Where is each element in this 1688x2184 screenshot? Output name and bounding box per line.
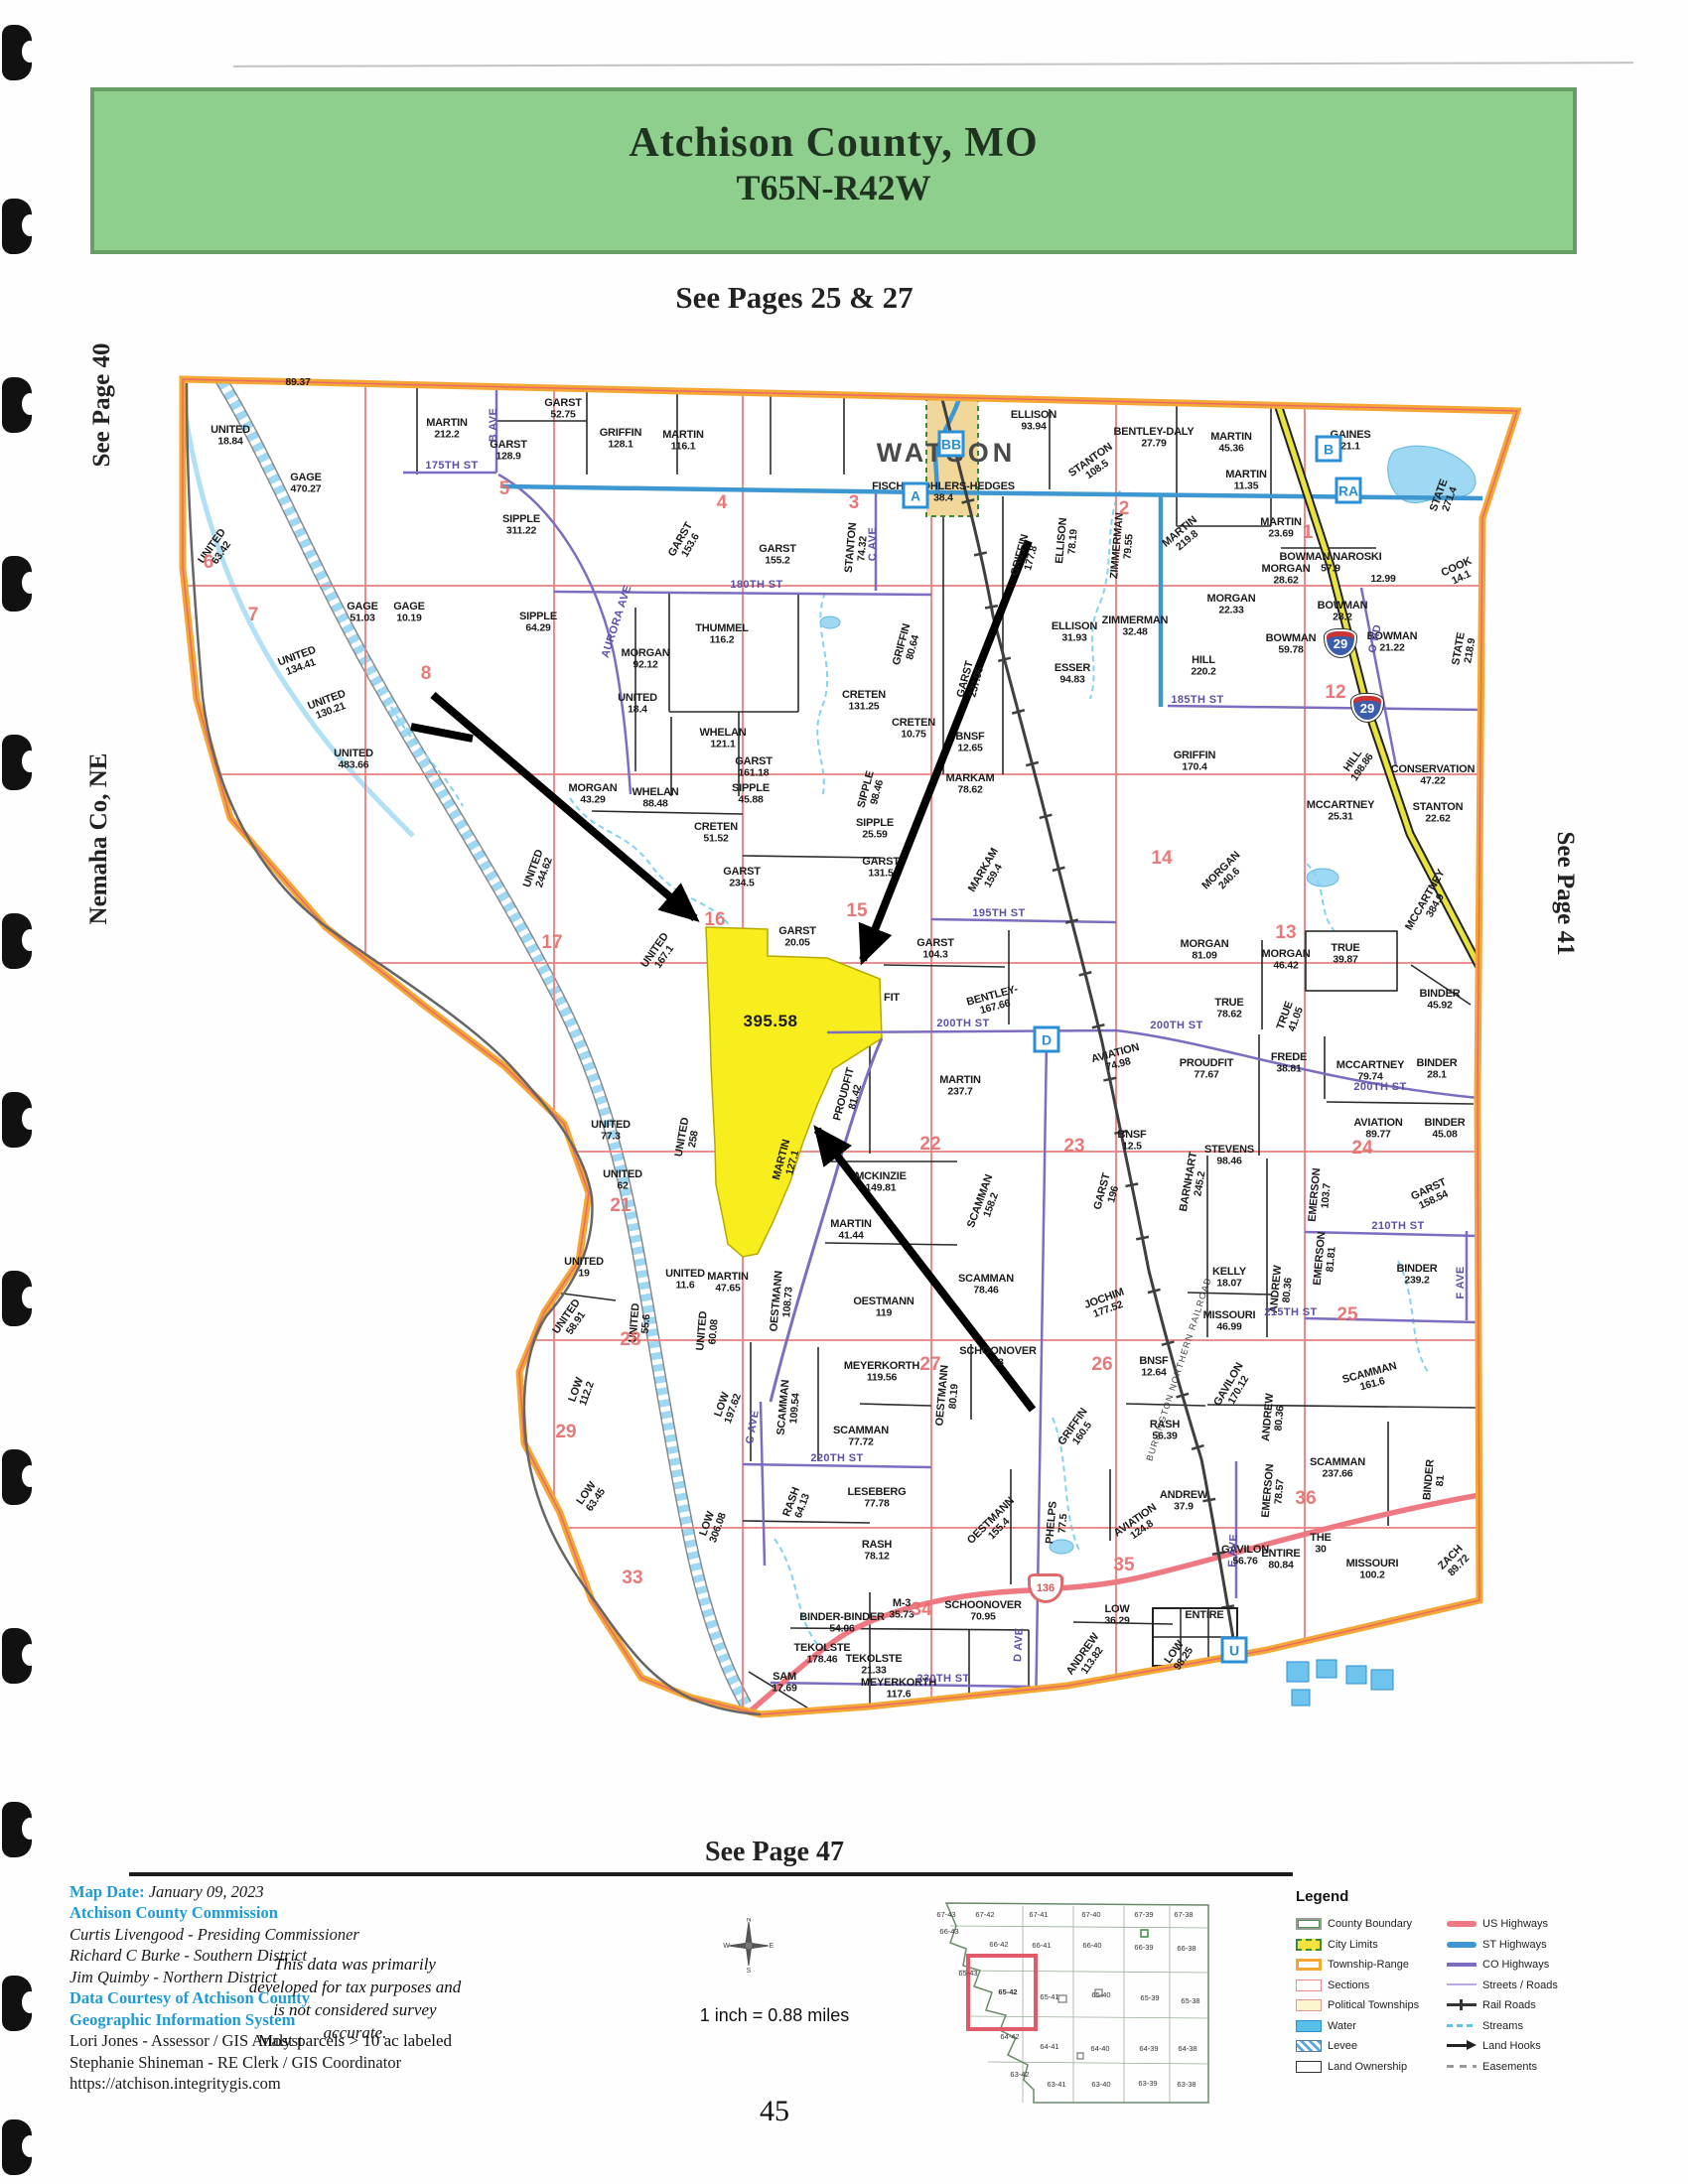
svg-text:S: S (747, 1968, 752, 1974)
inset-township-65-41: 65-41 (1040, 1992, 1058, 2001)
section-number: 12 (1325, 682, 1345, 703)
legend-label: Rail Roads (1482, 1999, 1536, 2011)
inset-township-64-39: 64-39 (1139, 2044, 1158, 2053)
county-outline (946, 1903, 1208, 2103)
section-number: 36 (1295, 1488, 1316, 1509)
commission-line: Atchison County Commission (70, 1903, 487, 1922)
parcel-label: GAGE10.19 (393, 601, 425, 624)
section-number: 7 (248, 605, 259, 625)
section-number: 34 (911, 1599, 932, 1620)
road-label: B AVE (488, 408, 499, 442)
section-number: 2 (1119, 498, 1130, 519)
binding-coil (2, 25, 32, 80)
nemaha-co-label: Nemaha Co, NE (85, 753, 113, 925)
inset-township-65-40: 65-40 (1091, 1990, 1110, 1999)
see-page-41: See Page 41 (1551, 832, 1579, 956)
staff-line: https://atchison.integritygis.com (70, 2074, 487, 2093)
section-number: 1 (1303, 522, 1314, 543)
inset-township-67-43: 67-43 (936, 1910, 955, 1919)
legend-item: County Boundary (1296, 1914, 1419, 1935)
road-label: 220TH ST (810, 1452, 863, 1464)
inset-township-63-39: 63-39 (1138, 2079, 1157, 2088)
binding-coil (2, 1092, 32, 1148)
county-inset-map: 67-4367-4267-4167-4067-3967-3866-4366-42… (928, 1886, 1226, 2115)
inset-township-66-39: 66-39 (1134, 1943, 1153, 1952)
binding-coil (2, 1628, 32, 1684)
inset-township-63-40: 63-40 (1091, 2080, 1110, 2089)
binding-coil (2, 377, 32, 433)
road-label: D AVE (1012, 1627, 1026, 1662)
state-route-shield: U (1221, 1637, 1248, 1664)
legend-label: Easements (1482, 2061, 1537, 2073)
legend-item: Land Ownership (1296, 2057, 1419, 2078)
page-number: 45 (715, 2095, 834, 2128)
road-label: 200TH ST (1150, 1020, 1202, 1031)
section-number: 16 (704, 909, 725, 930)
inset-township-65-38: 65-38 (1181, 1996, 1199, 2005)
road-label: 175TH ST (425, 460, 478, 472)
inset-township-67-39: 67-39 (1134, 1910, 1153, 1919)
svg-text:W: W (723, 1943, 730, 1950)
inset-township-64-40: 64-40 (1090, 2044, 1109, 2053)
section-number: 27 (919, 1354, 940, 1375)
legend-item: US Highways (1447, 1914, 1558, 1935)
section-number: 22 (919, 1134, 940, 1155)
legend-swatch-poltwp (1296, 1999, 1322, 2011)
inset-township-66-40: 66-40 (1082, 1941, 1101, 1950)
parcel-label: SIPPLE311.22 (502, 513, 540, 537)
legend-item: Township-Range (1296, 1955, 1419, 1976)
see-pages-top: See Pages 25 & 27 (397, 280, 1192, 316)
legend-swatch-county (1296, 1918, 1322, 1930)
road-label: E AVE (1226, 1534, 1240, 1568)
legend-item: City Limits (1296, 1935, 1419, 1956)
parcel-label: UNITED483.66 (334, 748, 373, 771)
inset-township-66-42: 66-42 (989, 1940, 1008, 1949)
road-label: F AVE (1455, 1266, 1467, 1298)
legend-swatch-twp (1296, 1959, 1322, 1971)
binding-coil (2, 2119, 32, 2175)
legend-item: Streams (1447, 2016, 1558, 2037)
section-number: 3 (849, 492, 860, 513)
section-number: 6 (204, 552, 214, 573)
binding-coil (2, 1976, 32, 2031)
parcel-label: RASH78.12 (862, 1539, 893, 1563)
state-route-shield: A (903, 482, 929, 509)
inset-township-66-38: 66-38 (1177, 1944, 1196, 1953)
inset-township-66-41: 66-41 (1032, 1941, 1051, 1950)
parcel-label: LOW36.29 (1104, 1603, 1130, 1627)
binding-coil (2, 1449, 32, 1505)
section-number: 5 (499, 478, 510, 499)
inset-township-67-38: 67-38 (1174, 1910, 1193, 1919)
legend-item: Rail Roads (1447, 1995, 1558, 2016)
see-page-47: See Page 47 (377, 1837, 1172, 1868)
parcel-label: HILL220.2 (1191, 654, 1216, 678)
legend-item: ST Highways (1447, 1935, 1558, 1956)
parcel-label: BNSF12.64 (1139, 1355, 1169, 1379)
parcel-label: ENTIRE (1185, 1609, 1223, 1621)
highlighted-parcel-acreage: 395.58 (744, 1012, 798, 1030)
parcel-label: GAGE470.27 (290, 472, 322, 495)
footer-rule (129, 1872, 1293, 1876)
legend-left-column: County BoundaryCity LimitsTownship-Range… (1296, 1914, 1419, 2077)
parcel-label: BNSF12.65 (955, 731, 985, 754)
state-route-shield: BB (938, 431, 965, 458)
inset-township-67-42: 67-42 (975, 1910, 994, 1919)
section-number: 28 (620, 1329, 640, 1350)
legend-item: Sections (1296, 1976, 1419, 1996)
inset-township-64-41: 64-41 (1040, 2042, 1058, 2051)
road-label: 195TH ST (972, 907, 1025, 919)
section-number: 29 (555, 1422, 576, 1442)
inset-township-65-39: 65-39 (1140, 1993, 1159, 2002)
legend-label: County Boundary (1328, 1918, 1412, 1930)
binding-coil (2, 556, 32, 612)
road-label: 230TH ST (916, 1673, 969, 1685)
binding-coil (2, 735, 32, 790)
plat-map-svg: 89.37UNITED18.84GAGE470.27MARTIN212.2GAR… (175, 369, 1521, 1722)
road-label: 215TH ST (1264, 1306, 1317, 1318)
legend-label: Sections (1328, 1979, 1369, 1991)
section-number: 21 (610, 1195, 632, 1216)
parcel-label: SAM17.69 (772, 1671, 797, 1695)
parcel-label: 89.37 (285, 376, 311, 388)
legend-label: Levee (1328, 2040, 1357, 2052)
road-label: 185TH ST (1171, 694, 1223, 706)
section-number: 24 (1351, 1138, 1373, 1159)
state-route-shield: B (1316, 436, 1342, 463)
scan-artifact-line (233, 62, 1633, 68)
county-title: Atchison County, MO (94, 119, 1573, 167)
inset-township-63-38: 63-38 (1177, 2080, 1196, 2089)
scale-note: 1 inch = 0.88 miles (655, 2005, 894, 2026)
inset-township-65-42: 65-42 (998, 1987, 1017, 1996)
legend-item: Easements (1447, 2057, 1558, 2078)
legend: Legend County BoundaryCity LimitsTownshi… (1296, 1888, 1584, 1911)
inset-township-66-43: 66-43 (939, 1927, 958, 1936)
binding-coil (2, 199, 32, 254)
compass-rose: NSWE (723, 1918, 774, 1974)
legend-swatch-sections (1296, 1979, 1322, 1991)
road-label: 200TH ST (936, 1018, 989, 1029)
legend-label: Political Townships (1328, 1999, 1419, 2011)
inset-township-67-40: 67-40 (1081, 1910, 1100, 1919)
section-number: 23 (1063, 1136, 1084, 1157)
legend-label: ST Highways (1482, 1939, 1547, 1951)
legend-label: Land Hooks (1482, 2040, 1541, 2052)
parcel-label: 12.99 (1370, 573, 1396, 585)
section-number: 17 (541, 932, 562, 953)
commissioner-line: Curtis Livengood - Presiding Commissione… (70, 1925, 487, 1944)
section-number: 8 (421, 663, 432, 684)
legend-title: Legend (1296, 1888, 1584, 1905)
legend-swatch-land (1296, 2061, 1322, 2073)
legend-label: US Highways (1482, 1918, 1548, 1930)
legend-item: Water (1296, 2016, 1419, 2037)
state-route-shield: RA (1336, 478, 1362, 504)
water-squares (1287, 1660, 1393, 1706)
legend-label: Land Ownership (1328, 2061, 1407, 2073)
inset-township-63-42: 63-42 (1010, 2070, 1029, 2079)
binding-coil (2, 1271, 32, 1326)
legend-item: Levee (1296, 2036, 1419, 2057)
road-label: 180TH ST (730, 579, 782, 591)
binding-coil (2, 1802, 32, 1857)
see-page-40: See Page 40 (88, 343, 116, 468)
map-date-label: Map Date: (70, 1882, 145, 1901)
legend-swatch-water (1296, 2020, 1322, 2032)
legend-label: Streams (1482, 2020, 1523, 2032)
section-number: 13 (1275, 922, 1296, 943)
section-number: 4 (717, 492, 728, 513)
road-label: C AVE (867, 527, 879, 561)
road-label: 210TH ST (1371, 1220, 1424, 1232)
legend-label: CO Highways (1482, 1959, 1549, 1971)
section-number: 26 (1091, 1354, 1112, 1375)
parcel-label: TRUE39.87 (1331, 942, 1359, 966)
inset-township-64-42: 64-42 (1000, 2032, 1019, 2041)
plat-book-page: { "page": { "title_line1": "Atchison Cou… (0, 0, 1688, 2184)
parcel-label: FIT (884, 992, 900, 1004)
section-number: 35 (1113, 1555, 1135, 1575)
inset-township-65-43: 65-43 (958, 1969, 977, 1978)
title-banner: Atchison County, MO T65N-R42W (90, 87, 1577, 254)
map-date-value: January 09, 2023 (149, 1882, 264, 1901)
legend-item: Land Hooks (1447, 2036, 1558, 2057)
plat-map: 89.37UNITED18.84GAGE470.27MARTIN212.2GAR… (175, 369, 1521, 1722)
section-number: 14 (1151, 848, 1173, 869)
staff-line: Stephanie Shineman - RE Clerk / GIS Coor… (70, 2053, 487, 2072)
road-label: 200TH ST (1353, 1081, 1406, 1093)
section-number: 25 (1336, 1304, 1358, 1325)
legend-item: Streets / Roads (1447, 1976, 1558, 1996)
state-route-shield: D (1034, 1026, 1060, 1053)
parcel-label: TRUE78.62 (1214, 997, 1243, 1021)
inset-township-67-41: 67-41 (1029, 1910, 1048, 1919)
legend-item: Political Townships (1296, 1995, 1419, 2016)
section-number: 33 (622, 1568, 642, 1588)
legend-label: City Limits (1328, 1939, 1378, 1951)
legend-label: Township-Range (1328, 1959, 1409, 1971)
svg-text:E: E (770, 1943, 774, 1950)
legend-label: Streets / Roads (1482, 1979, 1558, 1991)
township-range-title: T65N-R42W (94, 167, 1573, 208)
svg-text:N: N (746, 1918, 751, 1924)
binding-coil (2, 913, 32, 969)
inset-township-64-38: 64-38 (1178, 2044, 1196, 2053)
legend-item: CO Highways (1447, 1955, 1558, 1976)
legend-label: Water (1328, 2020, 1356, 2032)
section-number: 15 (846, 900, 868, 921)
legend-swatch-city (1296, 1939, 1322, 1951)
inset-township-63-41: 63-41 (1047, 2080, 1065, 2089)
parcels-note: Most parcels > 10 ac labeled (238, 2031, 472, 2051)
legend-right-column: US HighwaysST HighwaysCO HighwaysStreets… (1447, 1914, 1558, 2077)
legend-swatch-levee (1296, 2040, 1322, 2052)
parcel-label: GARST161.18 (735, 755, 773, 779)
parcel-label: GAGE51.03 (347, 601, 378, 624)
